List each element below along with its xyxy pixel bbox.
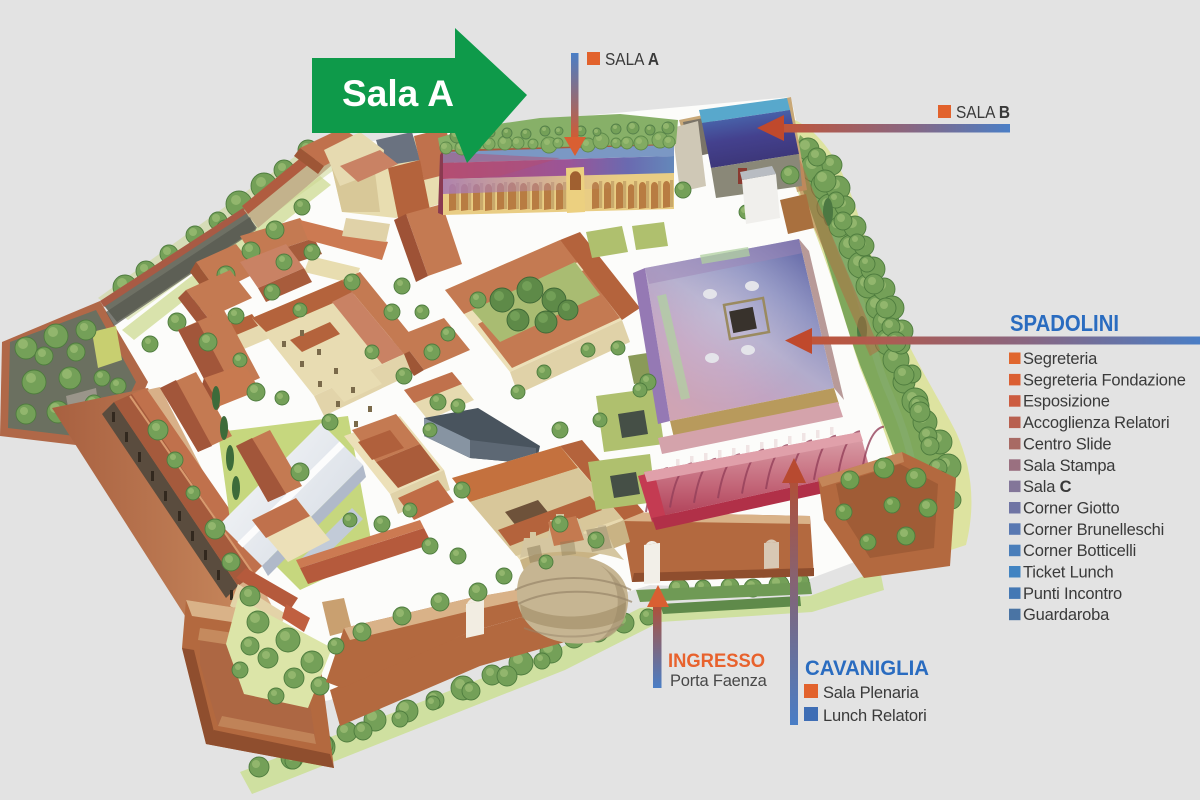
- svg-text:Corner Botticelli: Corner Botticelli: [1023, 542, 1136, 560]
- svg-text:Sala A: Sala A: [342, 73, 454, 114]
- svg-text:Guardaroba: Guardaroba: [1023, 606, 1110, 624]
- svg-text:Corner Giotto: Corner Giotto: [1023, 500, 1119, 518]
- svg-text:CAVANIGLIA: CAVANIGLIA: [805, 657, 929, 680]
- svg-text:Accoglienza Relatori: Accoglienza Relatori: [1023, 414, 1169, 432]
- svg-text:Sala Plenaria: Sala Plenaria: [823, 684, 920, 702]
- svg-text:SALA B: SALA B: [956, 102, 1010, 122]
- svg-text:Porta Faenza: Porta Faenza: [670, 672, 768, 690]
- svg-text:Ticket Lunch: Ticket Lunch: [1023, 564, 1114, 582]
- svg-text:Corner Brunelleschi: Corner Brunelleschi: [1023, 521, 1164, 539]
- svg-text:Sala C: Sala C: [1023, 478, 1072, 496]
- svg-text:Segreteria: Segreteria: [1023, 350, 1098, 368]
- svg-text:Punti Incontro: Punti Incontro: [1023, 585, 1122, 603]
- svg-text:Lunch Relatori: Lunch Relatori: [823, 707, 927, 725]
- svg-text:SPADOLINI: SPADOLINI: [1010, 310, 1119, 336]
- svg-text:INGRESSO: INGRESSO: [668, 650, 765, 672]
- svg-text:Segreteria Fondazione: Segreteria Fondazione: [1023, 371, 1186, 389]
- svg-text:Sala Stampa: Sala Stampa: [1023, 457, 1116, 475]
- svg-text:Centro Slide: Centro Slide: [1023, 435, 1111, 453]
- svg-text:Esposizione: Esposizione: [1023, 393, 1110, 411]
- svg-text:SALA A: SALA A: [605, 49, 659, 69]
